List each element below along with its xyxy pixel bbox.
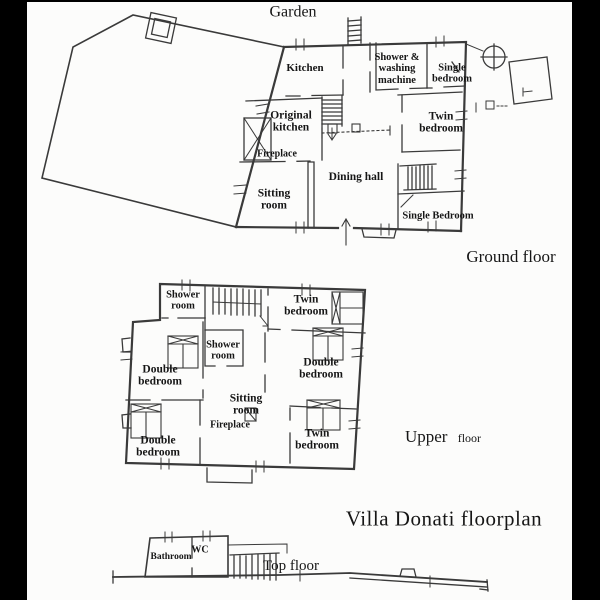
room-label-original-kitchen: Original kitchen [262, 110, 320, 135]
bed-icon [131, 404, 161, 438]
room-label-twin-bedroom-bottom: Twin bedroom [289, 428, 345, 453]
room-label-single-bedroom-bottom: Single Bedroom [402, 210, 473, 221]
room-label-double-bedroom-left: Double bedroom [129, 364, 191, 389]
page-title: Villa Donati floorplan [346, 508, 542, 531]
right-border-bar [572, 0, 600, 600]
room-label-single-bedroom-top: Single bedroom [428, 63, 476, 86]
top-floor-caption: Top floor [263, 558, 319, 574]
upper-floor-caption-main: Upper [405, 427, 447, 446]
room-label-twin-bedroom-ground: Twin bedroom [411, 111, 471, 136]
room-label-double-bedroom-right: Double bedroom [290, 357, 352, 382]
garden-outline [42, 15, 284, 227]
room-label-twin-bedroom-top: Twin bedroom [277, 294, 335, 319]
staircase-icon [408, 166, 432, 189]
room-label-shower-room-middle: Shower room [200, 340, 246, 363]
bed-icon [313, 328, 343, 360]
room-label-kitchen: Kitchen [286, 63, 323, 75]
garden-label: Garden [269, 3, 316, 20]
room-label-shower-room-top: Shower room [160, 290, 206, 313]
bed-icon [307, 400, 340, 430]
room-label-fireplace-ground: Fireplace [257, 150, 297, 161]
room-label-sitting-room-upper: Sitting room [221, 393, 271, 418]
room-label-sitting-room-ground: Sitting room [249, 188, 299, 213]
room-label-double-bedroom-bottom: Double bedroom [127, 435, 189, 460]
floorplan-image: Garden Kitchen Shower & washing machine … [0, 0, 600, 600]
room-label-wc: WC [191, 546, 208, 557]
well-icon [146, 13, 177, 44]
room-label-bathroom: Bathroom [151, 552, 192, 562]
bed-icon [332, 292, 363, 324]
entry-arrow-icon [342, 219, 350, 245]
top-border-line [0, 0, 600, 2]
upper-floor-caption-sub: floor [458, 431, 481, 445]
staircase-icon [348, 17, 361, 44]
room-label-fireplace-upper: Fireplace [210, 421, 250, 432]
ground-floor-caption: Ground floor [466, 248, 555, 266]
room-label-shower-washing-machine: Shower & washing machine [369, 52, 425, 86]
left-border-bar [0, 0, 27, 600]
upper-floor-caption: Upper floor [405, 428, 481, 446]
room-label-dining-hall: Dining hall [329, 171, 384, 183]
staircase-icon [213, 288, 268, 326]
